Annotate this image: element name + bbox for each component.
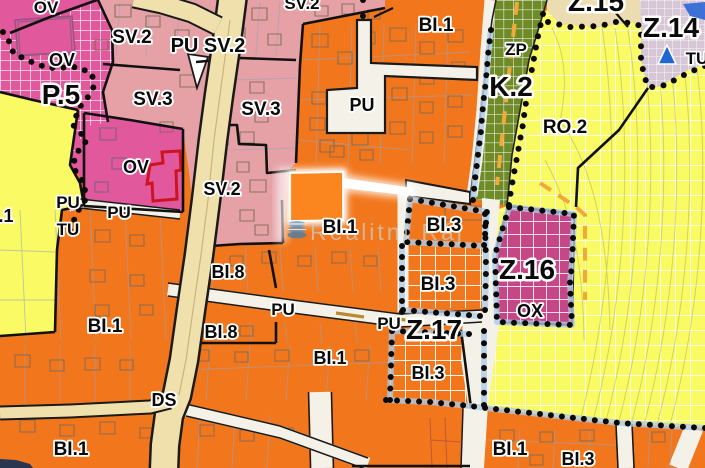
svg-text:OV: OV bbox=[49, 50, 75, 70]
svg-text:SV.2: SV.2 bbox=[284, 0, 319, 13]
svg-text:BI.8: BI.8 bbox=[211, 262, 244, 282]
svg-text:SV.2: SV.2 bbox=[112, 27, 151, 48]
svg-text:Z.16: Z.16 bbox=[499, 254, 555, 285]
svg-text:K.2: K.2 bbox=[489, 71, 533, 102]
svg-text:PU: PU bbox=[271, 300, 295, 319]
svg-text:BI.1: BI.1 bbox=[323, 217, 358, 238]
svg-text:BI.3: BI.3 bbox=[427, 215, 462, 236]
svg-text:SV.3: SV.3 bbox=[133, 89, 172, 110]
svg-text:Z.15: Z.15 bbox=[568, 0, 624, 17]
svg-text:RO.2: RO.2 bbox=[543, 117, 587, 138]
svg-text:BI.1: BI.1 bbox=[313, 348, 346, 368]
svg-text:TU: TU bbox=[57, 220, 80, 239]
svg-text:TU: TU bbox=[686, 49, 705, 68]
svg-text:BI.3: BI.3 bbox=[421, 274, 456, 295]
svg-text:OV: OV bbox=[123, 157, 149, 177]
svg-text:SV.3: SV.3 bbox=[241, 99, 280, 120]
svg-text:SV.2: SV.2 bbox=[203, 179, 240, 199]
svg-text:BI.1: BI.1 bbox=[493, 439, 528, 460]
svg-text:BI.3: BI.3 bbox=[411, 363, 444, 383]
svg-text:OX: OX bbox=[517, 301, 543, 321]
svg-text:.1: .1 bbox=[0, 206, 14, 226]
svg-text:PU: PU bbox=[56, 193, 80, 212]
svg-text:P.5: P.5 bbox=[42, 79, 80, 110]
svg-text:PU: PU bbox=[377, 314, 401, 333]
svg-text:ZP: ZP bbox=[505, 40, 527, 59]
svg-text:DS: DS bbox=[151, 390, 176, 410]
svg-text:BI.3: BI.3 bbox=[561, 449, 594, 468]
svg-text:Z.14: Z.14 bbox=[643, 12, 699, 43]
svg-text:PU: PU bbox=[349, 95, 374, 115]
svg-text:BI.1: BI.1 bbox=[54, 439, 89, 460]
svg-text:Z.17: Z.17 bbox=[406, 314, 462, 345]
svg-text:PU: PU bbox=[107, 203, 131, 222]
svg-text:BI.8: BI.8 bbox=[204, 322, 237, 342]
svg-text:BI.1: BI.1 bbox=[419, 15, 454, 36]
svg-text:OV: OV bbox=[34, 0, 59, 17]
svg-text:BI.1: BI.1 bbox=[88, 316, 123, 337]
svg-text:PU SV.2: PU SV.2 bbox=[171, 35, 246, 57]
